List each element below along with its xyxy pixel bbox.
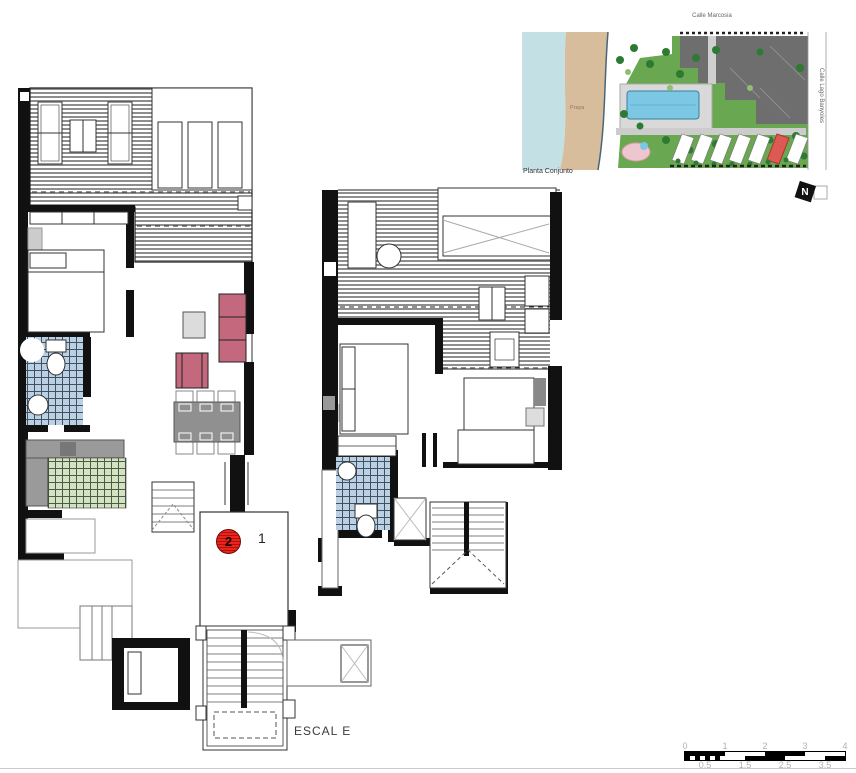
planter: [348, 202, 376, 268]
armchair: [176, 353, 208, 388]
entry-room: [200, 512, 288, 630]
left-pergola: [152, 88, 252, 190]
terrace-table: [377, 244, 401, 268]
sink-icon: [28, 395, 48, 415]
floor-plan-sheet: Praya N Calle Marcosia Calle Lago Banyol…: [0, 0, 856, 773]
middle-floor-plan: [318, 188, 562, 596]
bed: [340, 344, 408, 434]
middle-bathroom: [336, 457, 390, 537]
middle-pergola: [438, 188, 556, 260]
site-plan-map: Praya: [520, 28, 850, 174]
middle-light-shaft: [394, 498, 426, 540]
interior-stair: [152, 482, 194, 532]
scale-tick: 1: [722, 741, 727, 751]
scale-bar: 0 1 2 3 4 0.5 1.5 2.5 3.5: [684, 741, 850, 771]
left-bathroom: [20, 337, 83, 425]
coffee-table: [183, 312, 205, 338]
north-label: N: [801, 187, 808, 198]
middle-bedroom-right: [443, 372, 548, 464]
bed: [464, 378, 534, 430]
light-shaft: [287, 640, 371, 686]
sea-area: [522, 32, 566, 170]
dining-set: [174, 391, 240, 454]
living-room: [174, 294, 246, 454]
beach-label: Praya: [570, 105, 585, 111]
unit-number-badge: 2: [216, 529, 241, 554]
middle-staircase: [430, 502, 506, 588]
street-right-label: Calle Lago Banyoles: [818, 68, 824, 123]
left-bedroom: [28, 212, 128, 332]
toilet-icon: [355, 504, 377, 537]
scale-tick: 3: [802, 741, 807, 751]
sofa: [219, 294, 246, 362]
scale-tick: 4: [842, 741, 847, 751]
sheet-rule: [0, 768, 856, 769]
street-top-label: Calle Marcosia: [637, 13, 787, 19]
stair-label: ESCAL E: [294, 724, 351, 738]
kids-pool: [640, 142, 648, 150]
bed: [458, 430, 534, 464]
left-floor-plan: [18, 88, 371, 750]
toilet-icon: [46, 340, 66, 375]
left-kitchen: [26, 440, 126, 508]
main-staircase: [196, 626, 295, 750]
scale-tick: 2: [762, 741, 767, 751]
site-plan-caption: Planta Conjunto: [523, 168, 573, 175]
scale-tick: 0: [682, 741, 687, 751]
sink-icon: [338, 462, 356, 480]
path: [708, 36, 716, 84]
bed: [28, 250, 104, 332]
elevator: [112, 638, 190, 710]
middle-corridor: [322, 470, 338, 588]
north-arrow-icon: N: [792, 180, 832, 206]
unit-number-secondary: 1: [258, 530, 266, 546]
